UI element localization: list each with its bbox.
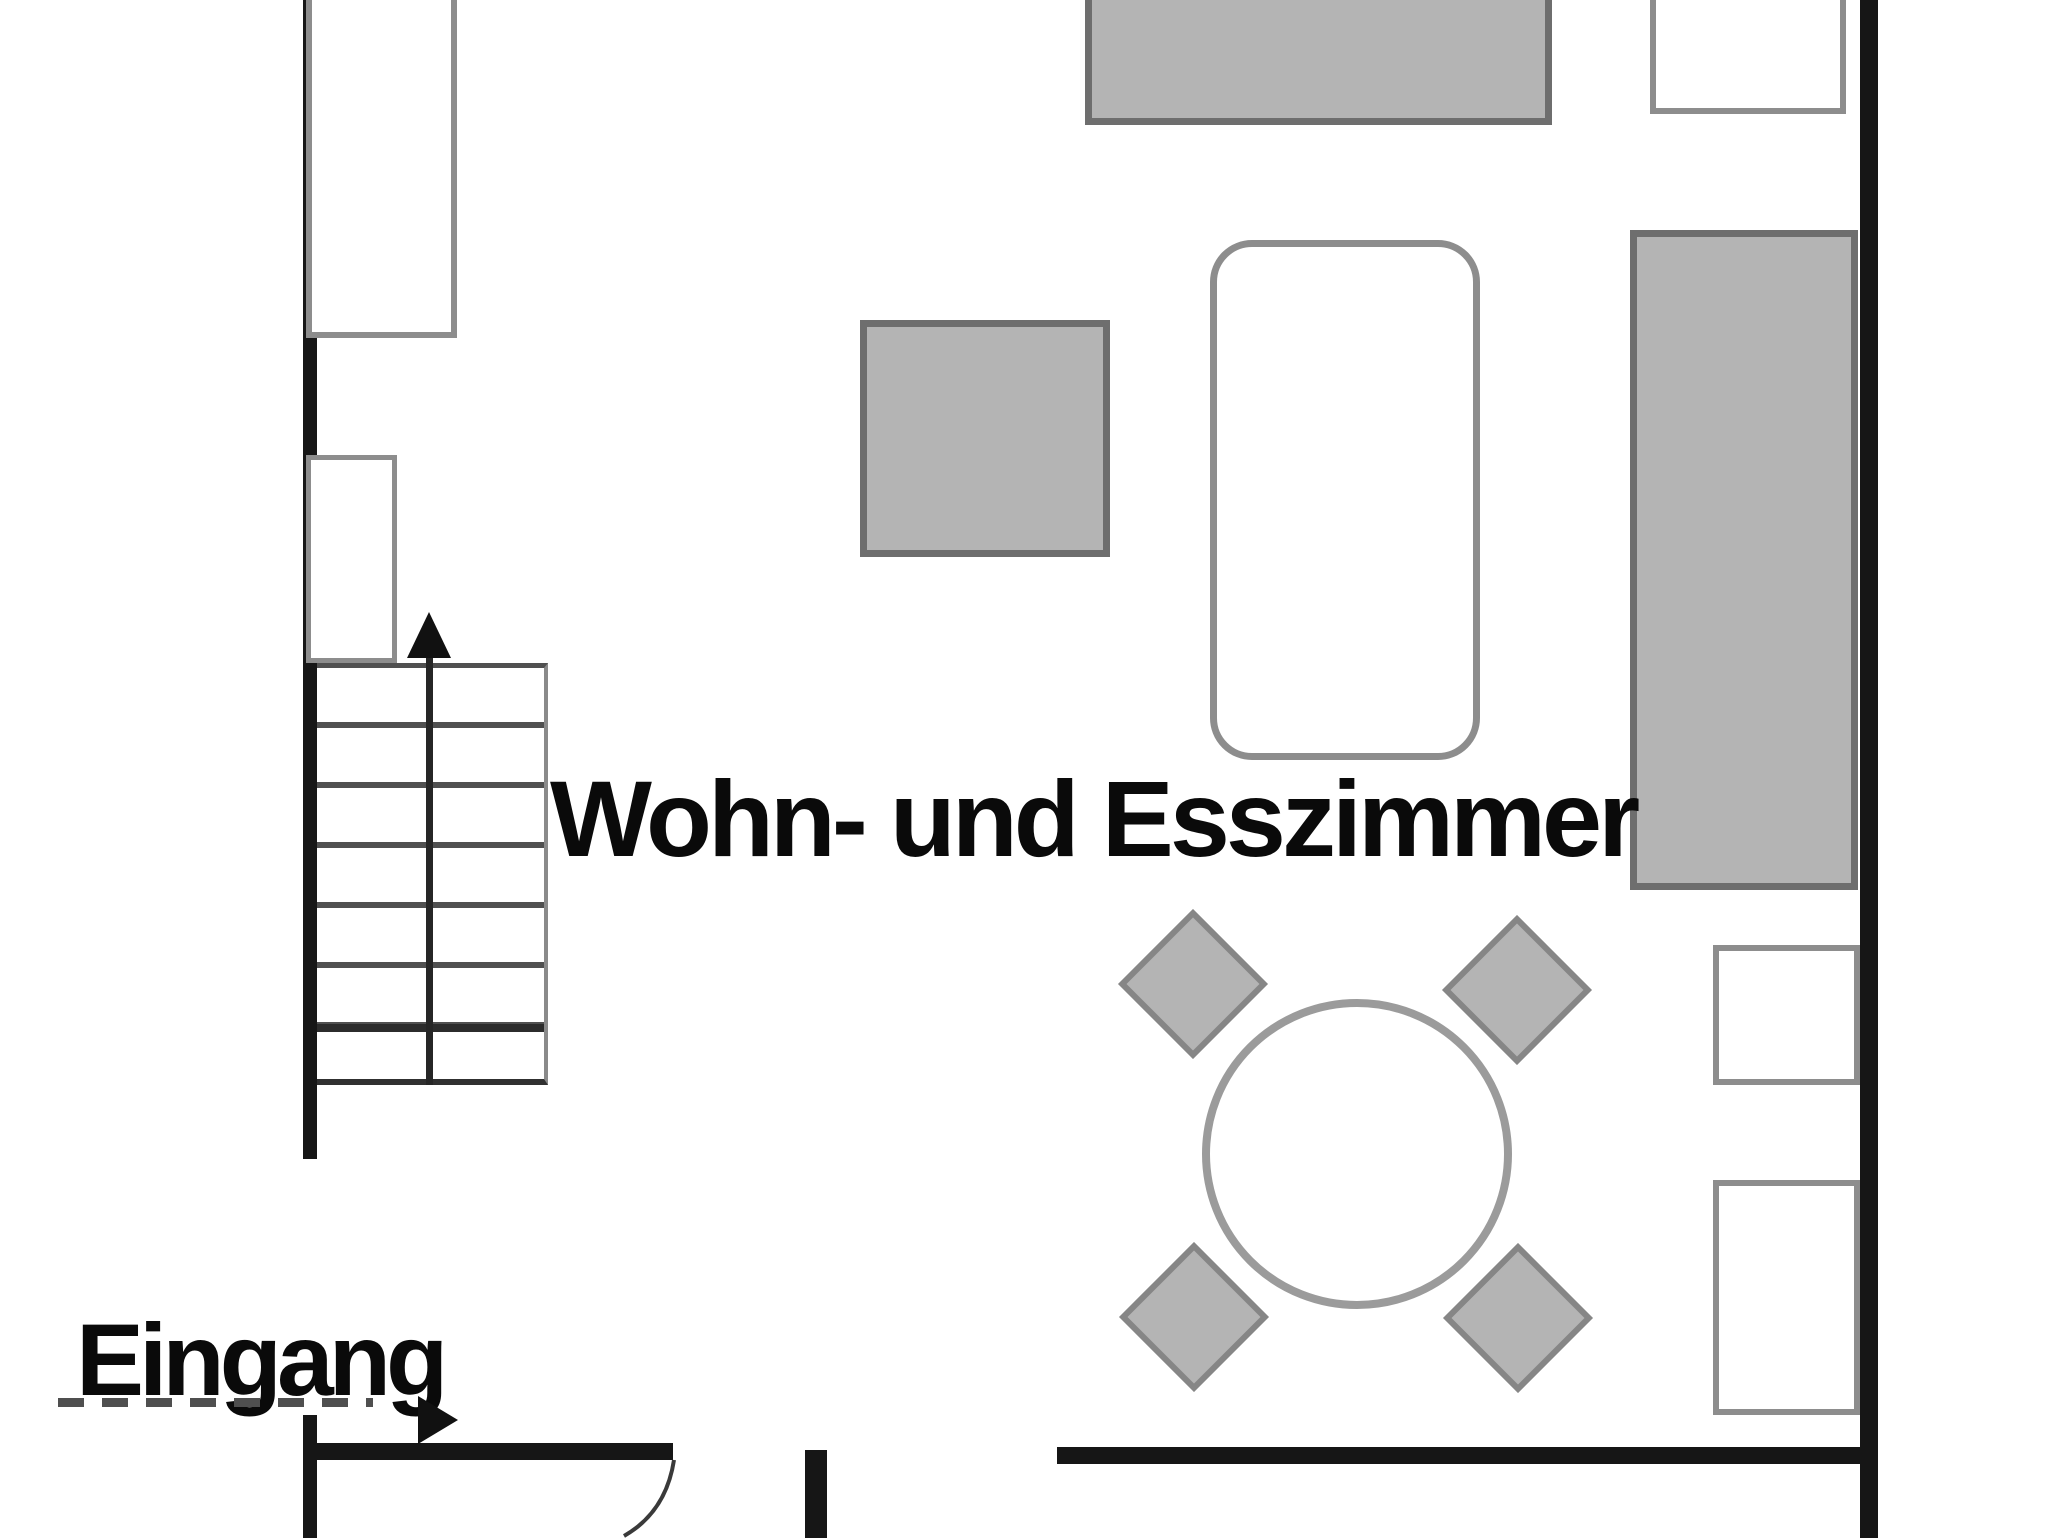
door-swing-arc xyxy=(618,1456,678,1538)
dining-chair-bottom-right xyxy=(1443,1243,1593,1393)
floorplan-canvas: Wohn- und Esszimmer Eingang xyxy=(0,0,2048,1538)
dining-chair-bottom-left xyxy=(1119,1242,1269,1392)
cabinet-top-right xyxy=(1650,0,1846,114)
closet-top-left xyxy=(306,0,457,338)
wall-bottom-stub xyxy=(805,1450,827,1538)
dining-chair-top-left xyxy=(1118,909,1268,1059)
shelf-right-upper xyxy=(1713,945,1860,1085)
arrow-right-icon xyxy=(418,1396,458,1444)
sideboard-right xyxy=(1630,230,1858,890)
door-niche-rect xyxy=(306,455,397,663)
dining-table xyxy=(1202,999,1512,1309)
wall-left-lower xyxy=(303,1415,317,1538)
room-label: Wohn- und Esszimmer xyxy=(550,756,1636,881)
wall-right xyxy=(1860,0,1878,1538)
sofa-top xyxy=(1085,0,1552,125)
stairs-up-arrow-shaft xyxy=(426,648,433,1085)
entrance-path-dashed-line xyxy=(58,1398,373,1407)
wall-bottom-right xyxy=(1057,1447,1878,1464)
coffee-table xyxy=(1210,240,1480,760)
arrow-up-icon xyxy=(407,612,451,658)
armchair-square xyxy=(860,320,1110,557)
shelf-right-lower xyxy=(1713,1180,1860,1415)
